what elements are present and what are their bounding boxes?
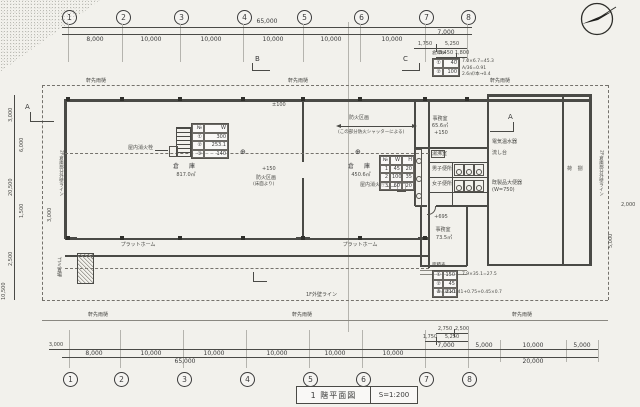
eaves-note: 軒先雨樋 <box>86 79 106 84</box>
grid-label: 6 <box>359 13 364 22</box>
grid-line <box>467 24 468 62</box>
dim-label: 7,000 <box>437 343 454 349</box>
dim-label: 5,250 <box>445 42 459 47</box>
schedule-table: ①40 ②100 <box>432 58 460 77</box>
canopy-dashed-line <box>42 85 608 86</box>
dim-label: 10,000 <box>382 37 403 43</box>
dim-label: 10,000 <box>263 37 284 43</box>
eaves-note: 軒先雨樋 <box>512 313 532 318</box>
level-mark: +150 <box>262 167 276 172</box>
dim-label: 5,000 <box>475 343 492 349</box>
table-cell: ③ <box>192 150 204 159</box>
page-seam-line <box>348 22 349 332</box>
room-area: 817.0㎡ <box>176 173 195 178</box>
dim-line <box>14 95 15 300</box>
partition-wall <box>436 205 488 207</box>
table-cell: 40 <box>443 59 459 68</box>
level-mark: +150 <box>434 131 448 136</box>
canopy-dashed-line <box>65 268 429 269</box>
column <box>66 97 70 101</box>
column-symbol: ⊕ <box>240 149 246 156</box>
dim-label: 20,000 <box>523 359 544 365</box>
north-arrow-icon <box>578 2 618 38</box>
dim-line <box>62 357 598 358</box>
firezone-subnote: (この部分防火シャッターによる) <box>338 131 404 136</box>
wall-line-note: 2F倉庫部分外壁ライン <box>58 150 63 196</box>
wall <box>487 95 489 266</box>
grid-label: 5 <box>308 375 313 384</box>
dim-label: 65,000 <box>175 359 196 365</box>
dim-label: 8,000 <box>86 37 103 43</box>
eaves-note: 軒先雨樋 <box>288 79 308 84</box>
dim-line <box>62 27 472 28</box>
grid-bubble: 5 <box>297 10 312 25</box>
room-label: プラットホーム <box>121 243 156 248</box>
wall <box>428 101 430 268</box>
grid-label: 2 <box>119 375 124 384</box>
section-marker: A <box>25 104 30 111</box>
table-cell: ② <box>433 68 443 77</box>
grid-bubble: 3 <box>174 10 189 25</box>
eaves-note: 軒先雨樋 <box>88 313 108 318</box>
table-cell: 60 <box>390 182 402 191</box>
drawing-title: 1 階平面図 <box>297 387 371 403</box>
wall <box>64 99 67 239</box>
grid-bubble: 6 <box>354 10 369 25</box>
room-label: 倉 庫 <box>173 164 197 170</box>
fire-partition-line <box>65 153 429 154</box>
grid-label: 3 <box>182 375 187 384</box>
grid-label: 3 <box>179 13 184 22</box>
dim-label: 5,000 <box>573 343 590 349</box>
sink <box>416 193 422 199</box>
grid-label: 1 <box>67 13 72 22</box>
fixture-note: (W=750) <box>492 188 515 193</box>
table-cell: 2 <box>380 173 390 182</box>
dim-line <box>49 349 598 350</box>
dim-label: 6,000 <box>20 138 25 152</box>
table-cell: 20 <box>402 165 414 174</box>
grid-line <box>360 24 361 62</box>
table-cell: № <box>192 124 204 133</box>
fixture-note: 流し台 <box>492 151 507 156</box>
grid-line <box>122 24 123 62</box>
table-cell: ① <box>433 59 443 68</box>
grid-line <box>68 24 69 62</box>
table-cell: 253.1 <box>204 141 228 150</box>
partition-wall <box>466 205 468 266</box>
table-cell: 300 <box>204 133 228 142</box>
partition-wall <box>429 192 488 193</box>
room-label: 女子便所 <box>432 182 452 187</box>
grid-line <box>243 24 244 62</box>
toilet-fixture <box>456 185 462 191</box>
room-label: 男子便所 <box>432 167 452 172</box>
dim-label: 10,000 <box>321 37 342 43</box>
section-marker: C <box>403 56 408 63</box>
column <box>120 236 124 240</box>
grid-label: 2 <box>121 13 126 22</box>
table-cell: 150 <box>443 271 457 280</box>
dim-label: 10,000 <box>141 37 162 43</box>
arrow-line <box>340 126 412 127</box>
dim-label: 65,000 <box>257 19 278 25</box>
eaves-note: 軒先雨樋 <box>490 79 510 84</box>
section-marker: A <box>508 114 513 121</box>
grid-bubble: 7 <box>419 10 434 25</box>
room-area: 450.6㎡ <box>351 173 370 178</box>
column <box>241 97 245 101</box>
grid-bubble: 5 <box>303 372 318 387</box>
eaves-note: 軒先雨樋 <box>292 313 312 318</box>
garbage-label: ゴミ置場 <box>56 257 61 277</box>
toilet-fixture <box>456 169 462 175</box>
grid-bubble: 8 <box>461 10 476 25</box>
table-cell: 100 <box>443 68 459 77</box>
canopy-dashed-line <box>608 85 609 300</box>
toilet-fixture <box>466 169 472 175</box>
grid-bubble: 6 <box>356 372 371 387</box>
dim-label: 3,000 <box>9 108 14 122</box>
wall <box>65 99 591 102</box>
floor-plan-sheet: 1 2 3 4 5 6 7 8 65,000 8,000 10,000 10,0… <box>0 0 640 407</box>
calc-note: 7.9×35.1=27.5 <box>462 273 497 278</box>
column <box>465 97 469 101</box>
section-marker-line <box>252 70 270 71</box>
firezone-subnote: (床面より) <box>253 183 274 188</box>
room-label: プラットホーム <box>343 243 378 248</box>
room-label: 荷 捌 <box>567 167 585 172</box>
dim-tick <box>566 340 567 362</box>
dim-label: 3,000 <box>49 343 63 348</box>
wall-line-note: 2F倉庫部分外壁ライン <box>598 150 603 196</box>
room-area: 73.5㎡ <box>436 236 452 241</box>
hydrant-box <box>169 146 178 157</box>
dim-line <box>62 34 472 35</box>
grid-label: 1 <box>68 375 73 384</box>
section-marker-line <box>490 131 514 132</box>
dim-label: 20,500 <box>9 179 14 197</box>
partition-wall <box>429 162 488 163</box>
table-cell: 1 <box>380 165 390 174</box>
grid-bubble: 1 <box>62 10 77 25</box>
grid-label: 7 <box>424 375 429 384</box>
kitchen-sink <box>431 150 445 158</box>
sink <box>416 158 422 164</box>
partition-wall <box>452 163 453 205</box>
grid-label: 4 <box>242 13 247 22</box>
dim-label: 10,000 <box>201 37 222 43</box>
firezone-note: 防火区画 <box>256 176 276 181</box>
section-marker: B <box>255 56 260 63</box>
column <box>120 97 124 101</box>
table-cell: H <box>402 156 414 165</box>
title-block: 1 階平面図 S=1:200 <box>296 386 418 404</box>
canopy-dashed-line <box>42 300 608 301</box>
stairs <box>176 127 191 157</box>
dim-label: 7,000 <box>437 30 454 36</box>
table-cell: 45 <box>443 280 457 289</box>
dim-line <box>414 48 467 49</box>
firezone-note: 防火区画 <box>349 116 369 121</box>
arrow-head <box>336 124 341 128</box>
grid-label: 8 <box>467 375 472 384</box>
table-cell: ① <box>192 133 204 142</box>
toilet-fixture <box>476 185 482 191</box>
platform-edge <box>65 255 429 257</box>
dim-label: 1,800 <box>455 51 469 56</box>
dim-tick <box>598 340 599 362</box>
dim-label: 1,750 <box>418 42 432 47</box>
dim-tick <box>500 340 501 362</box>
grid-bubble: 1 <box>63 372 78 387</box>
column <box>301 97 305 101</box>
table-cell: № <box>380 156 390 165</box>
wall <box>589 94 592 266</box>
column <box>358 97 362 101</box>
table-title: 面積表 <box>432 264 446 269</box>
grid-line <box>303 24 304 62</box>
dim-label: 2,750 <box>438 327 452 332</box>
dim-label: 3,000 <box>48 208 53 222</box>
grid-line <box>180 24 181 62</box>
grid-bubble: 3 <box>177 372 192 387</box>
toilet-fixture <box>476 169 482 175</box>
grid-label: 8 <box>466 13 471 22</box>
dim-label: 1,750 <box>423 335 437 340</box>
table-cell: 35 <box>402 173 414 182</box>
garbage-area <box>77 253 94 284</box>
column <box>178 97 182 101</box>
table-cell: 3 <box>380 182 390 191</box>
room-area: 65.6㎡ <box>432 124 448 129</box>
grid-label: 5 <box>302 13 307 22</box>
toilet-fixture <box>466 185 472 191</box>
column-symbol: ⊕ <box>355 149 361 156</box>
table-cell: W <box>204 124 228 133</box>
dim-label: 10,000 <box>523 343 544 349</box>
partition-wall <box>420 205 422 266</box>
grid-label: 6 <box>361 375 366 384</box>
drawing-scale: S=1:200 <box>371 387 417 403</box>
hydrant-label: 屋内消火栓 <box>128 146 153 151</box>
column <box>178 236 182 240</box>
calc-note: 2.6㎡/本→0.4 <box>462 73 491 78</box>
schedule-table: №WH 14520 210035 36020 <box>379 155 415 191</box>
column <box>66 236 70 240</box>
slope-arrow <box>253 281 267 282</box>
wall <box>562 96 564 264</box>
grid-bubble: 4 <box>240 372 255 387</box>
sink <box>416 176 422 182</box>
fixture-note: 電気温水器 <box>492 140 517 145</box>
schedule-table: №W ①300 ②253.1 ③140 <box>191 123 229 159</box>
dim-label: 5,000 <box>609 234 614 248</box>
calc-note: A/36=0.91 <box>462 67 486 72</box>
table-cell: ② <box>433 280 443 289</box>
grid-bubble: 2 <box>116 10 131 25</box>
dim-label: 10,500 <box>2 283 7 301</box>
table-cell: 100 <box>390 173 402 182</box>
calc-note: 7.0×6.7=45.3 <box>462 60 494 65</box>
room-label: 事務室 <box>432 117 447 122</box>
table-cell: 20 <box>402 182 414 191</box>
table-cell: W <box>390 156 402 165</box>
fixture-note: 既製品大便器 <box>492 181 522 186</box>
dim-label: 2,500 <box>455 327 469 332</box>
canopy-dashed-line <box>42 85 43 300</box>
site-line <box>42 320 608 321</box>
grid-bubble: 7 <box>419 372 434 387</box>
level-mark: +695 <box>434 215 448 220</box>
section-marker-line <box>30 121 54 122</box>
column <box>301 236 305 240</box>
grid-bubble: 4 <box>237 10 252 25</box>
wall <box>487 94 591 97</box>
dim-label: 2,500 <box>9 252 14 266</box>
dim-label: 5,250 <box>445 335 459 340</box>
wall <box>487 264 591 266</box>
partition-wall <box>429 177 488 178</box>
wall-line-note: 1F外壁ライン <box>306 293 337 298</box>
dim-label: 2,000 <box>621 203 635 208</box>
column <box>241 236 245 240</box>
table-cell: 140 <box>204 150 228 159</box>
level-mark: ±100 <box>272 103 286 108</box>
room-label: 事務室 <box>435 228 450 233</box>
calc-note: A=36×1.41+0.75+0.45×0.7 <box>437 291 502 296</box>
table-title: 倉庫№ <box>432 52 446 57</box>
grid-bubble: 8 <box>462 372 477 387</box>
table-cell: 45 <box>390 165 402 174</box>
grid-label: 7 <box>424 13 429 22</box>
column <box>358 236 362 240</box>
room-label: 倉 庫 <box>348 164 372 170</box>
grid-bubble: 2 <box>114 372 129 387</box>
leader-line <box>155 150 168 151</box>
section-marker-line <box>402 70 420 71</box>
partition-wall <box>415 147 488 149</box>
arrow-head <box>412 124 417 128</box>
dim-label: 1,500 <box>20 204 25 218</box>
wall <box>302 178 304 239</box>
table-cell: ② <box>192 141 204 150</box>
column <box>423 97 427 101</box>
table-cell: ① <box>433 271 443 280</box>
column <box>423 236 427 240</box>
grid-label: 4 <box>245 375 250 384</box>
